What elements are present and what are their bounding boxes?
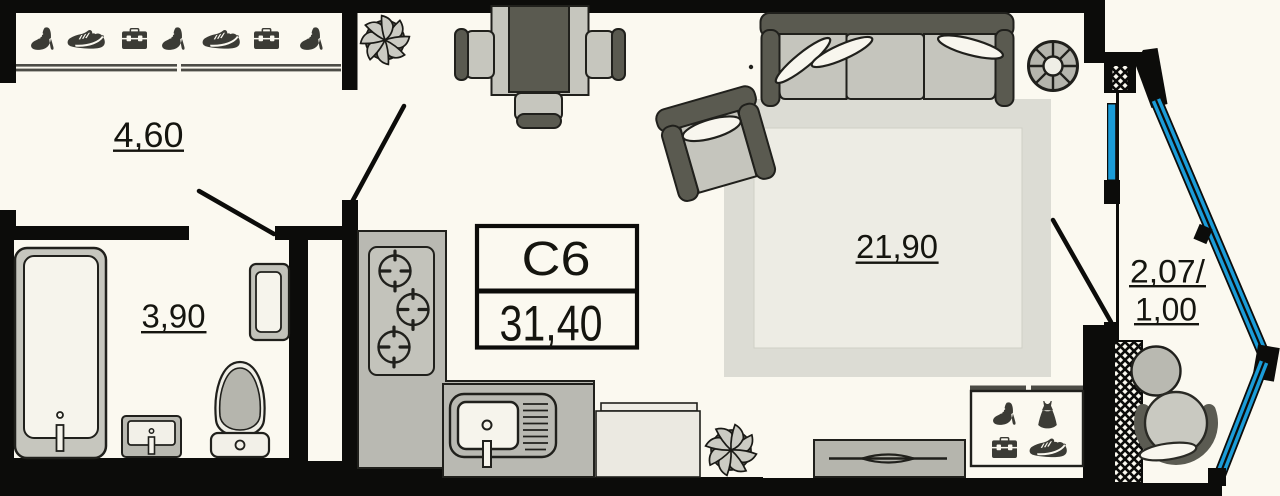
svg-text:4,60: 4,60: [114, 116, 184, 155]
svg-text:2,07/: 2,07/: [1130, 253, 1205, 289]
svg-text:31,40: 31,40: [500, 296, 603, 352]
svg-text:1,00: 1,00: [1135, 291, 1197, 327]
svg-text:3,90: 3,90: [142, 299, 206, 336]
svg-text:C6: C6: [522, 233, 591, 286]
svg-text:21,90: 21,90: [856, 229, 938, 266]
